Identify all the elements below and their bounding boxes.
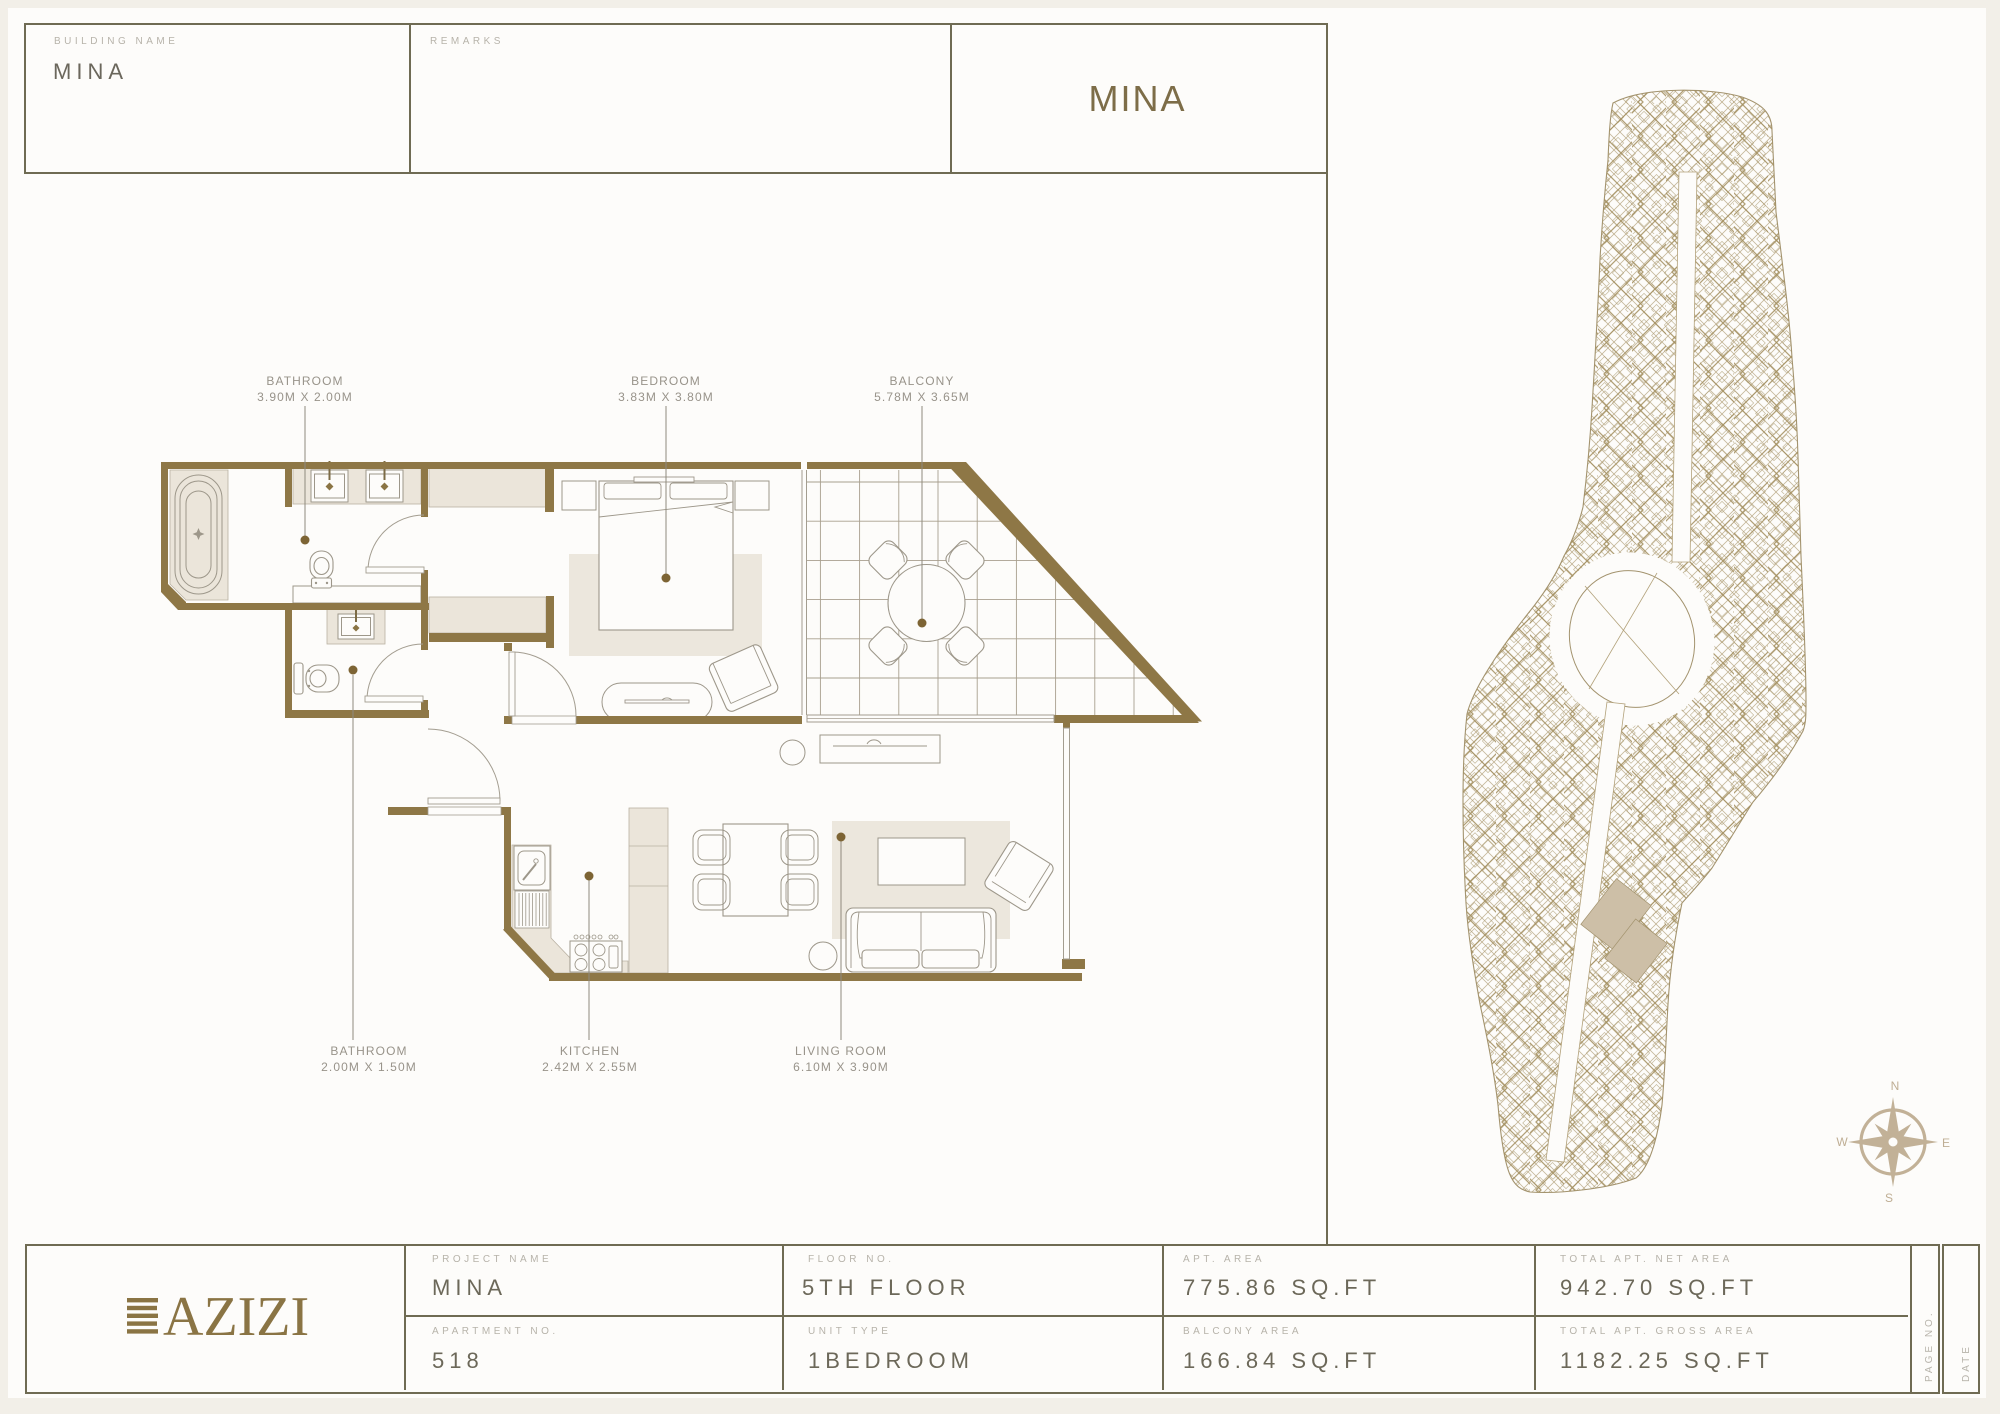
svg-text:W: W	[1836, 1135, 1848, 1149]
svg-text:E: E	[1942, 1136, 1950, 1150]
svg-text:N: N	[1891, 1079, 1900, 1093]
svg-text:S: S	[1885, 1191, 1893, 1205]
